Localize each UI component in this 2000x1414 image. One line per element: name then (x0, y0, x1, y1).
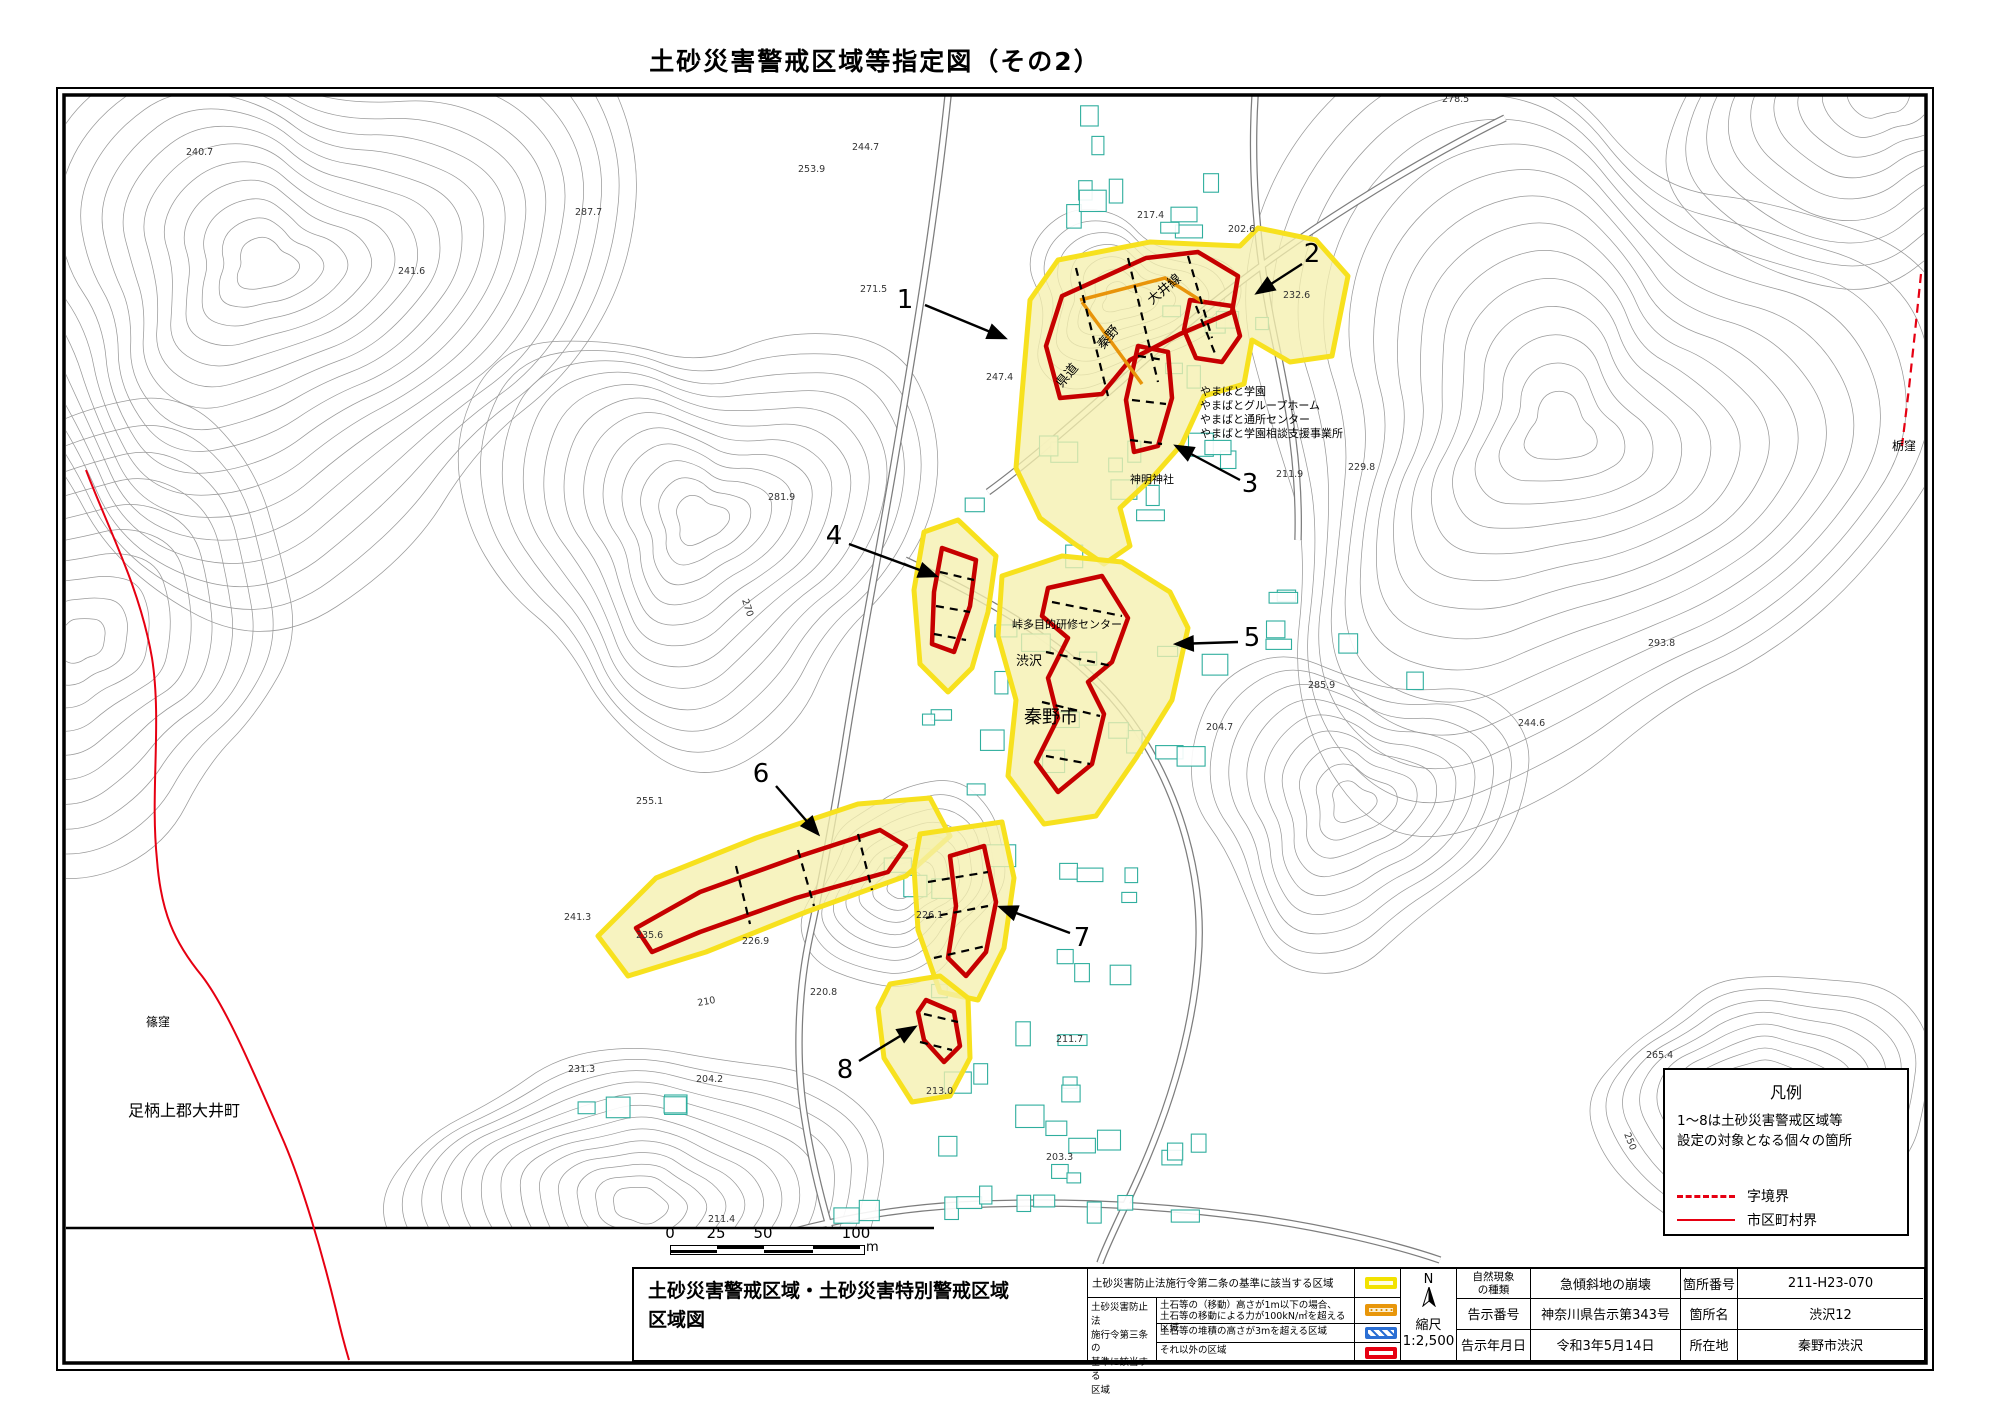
aza-boundary-dashed-line (1902, 274, 1921, 446)
north-arrow-icon (1422, 1287, 1436, 1307)
elevation-label: 270 (739, 598, 755, 619)
elevation-label: 241.3 (564, 912, 591, 923)
elevation-label: 281.9 (768, 492, 795, 503)
zone-number: 7 (1074, 923, 1091, 953)
legend-row-deposit: 土石等の堆積の高さが3mを超える区域 (1156, 1324, 1354, 1343)
elevation-label: 220.8 (810, 987, 837, 998)
elevation-label: 247.4 (986, 372, 1013, 383)
place-label: 足柄上郡大井町 (128, 1101, 240, 1120)
zone-number: 6 (753, 759, 770, 789)
map-frame-outer (57, 88, 1933, 1370)
elevation-label: 232.6 (1283, 290, 1310, 301)
place-label: 峠多目的研修センター (1012, 617, 1122, 631)
info-label: 自然現象 の種類 (1457, 1269, 1530, 1299)
elevation-label: 265.4 (1646, 1050, 1673, 1061)
divider (1354, 1297, 1400, 1298)
elevation-label: 211.7 (1056, 1034, 1083, 1045)
elevation-label: 226.9 (742, 936, 769, 947)
zone-number: 8 (837, 1055, 854, 1085)
legend-item-aza-boundary: 字境界 (1677, 1186, 1789, 1206)
info-value: 令和3年5月14日 (1530, 1330, 1680, 1360)
elevation-label: 231.3 (568, 1064, 595, 1075)
legend-note-line2: 設定の対象となる個々の箇所 (1677, 1133, 1907, 1151)
sheet-info-table: 自然現象 の種類 急傾斜地の崩壊 箇所番号 211-H23-070 告示番号 神… (1457, 1269, 1923, 1360)
info-label: 箇所名 (1680, 1299, 1737, 1329)
municipal-boundary-line (86, 470, 349, 1360)
legend-title: 凡例 (1665, 1079, 1907, 1103)
red-outline-swatch (1365, 1347, 1397, 1359)
place-label: やまばと学園 (1200, 384, 1266, 398)
info-label: 所在地 (1680, 1330, 1737, 1360)
elevation-label: 255.1 (636, 796, 663, 807)
zone-number: 3 (1242, 469, 1259, 499)
zone-number: 2 (1304, 239, 1321, 269)
elevation-label: 244.7 (852, 142, 879, 153)
article2-label: 土砂災害防止法施行令第二条の基準に該当する区域 (1092, 1276, 1334, 1291)
place-label: やまばとグループホーム (1200, 398, 1320, 412)
info-label: 箇所番号 (1680, 1269, 1737, 1299)
north-label: N (1401, 1272, 1456, 1287)
map-sheet-title-line1: 土砂災害警戒区域・土砂災害特別警戒区域 (648, 1277, 1087, 1306)
elevation-label: 271.5 (860, 284, 887, 295)
elevation-label: 244.6 (1518, 718, 1545, 729)
info-value: 秦野市渋沢 (1737, 1330, 1923, 1360)
divider (1354, 1323, 1400, 1324)
elevation-label: 204.7 (1206, 722, 1233, 733)
article3-header: 土砂災害防止法 施行令第三条の 基準に該当する 区域 (1088, 1298, 1156, 1364)
orange-dotted-swatch (1365, 1304, 1397, 1316)
legend-item-label: 市区町村界 (1747, 1210, 1817, 1230)
info-value: 211-H23-070 (1737, 1269, 1923, 1299)
legend-row-article2: 土砂災害防止法施行令第二条の基準に該当する区域 (1088, 1269, 1400, 1298)
map-sheet-title: 土砂災害警戒区域・土砂災害特別警戒区域 区域図 (634, 1269, 1088, 1360)
scale-value: 1:2,500 (1401, 1333, 1456, 1349)
divider (1354, 1342, 1400, 1343)
legend-note-line1: 1〜8は土砂災害警戒区域等 (1677, 1113, 1907, 1131)
legend-row-move: 土石等の（移動）高さが1m以下の場合、 土石等の移動による力が100kN/㎡を超… (1156, 1298, 1354, 1324)
elevation-label: 210 (697, 995, 717, 1009)
scale-tick: 0 (665, 1224, 675, 1242)
elevation-label: 229.8 (1348, 462, 1375, 473)
place-label: 秦野市 (1024, 707, 1078, 728)
elevation-label: 203.3 (1046, 1152, 1073, 1163)
elevation-label: 213.0 (926, 1086, 953, 1097)
elevation-label: 250 (1621, 1131, 1638, 1152)
info-value: 急傾斜地の崩壊 (1530, 1269, 1680, 1299)
elevation-label: 204.2 (696, 1074, 723, 1085)
place-label: やまばと通所センター (1200, 413, 1310, 426)
info-label: 告示年月日 (1457, 1330, 1530, 1360)
elevation-label: 202.6 (1228, 224, 1255, 235)
elevation-label: 211.9 (1276, 469, 1303, 480)
scale-unit: m (866, 1240, 879, 1255)
elevation-label: 293.8 (1648, 638, 1675, 649)
elevation-label: 285.9 (1308, 680, 1335, 691)
scale-label: 縮尺 (1401, 1314, 1456, 1333)
place-label: やまばと学園相談支援事業所 (1200, 426, 1343, 440)
elevation-label: 287.7 (575, 207, 602, 218)
compass-and-scale-cell: N 縮尺 1:2,500 (1400, 1269, 1457, 1360)
elevation-label: 226.1 (916, 910, 943, 921)
yellow-zone-swatch (1365, 1277, 1397, 1289)
map-sheet-title-line2: 区域図 (648, 1306, 1087, 1335)
legend-box: 凡例 1〜8は土砂災害警戒区域等 設定の対象となる個々の箇所 字境界 市区町村界 (1663, 1068, 1909, 1236)
elevation-label: 240.7 (186, 147, 213, 158)
elevation-label: 241.6 (398, 266, 425, 277)
solid-red-line-sample (1677, 1219, 1735, 1221)
scale-tick: 50 (753, 1224, 772, 1242)
dashed-red-line-sample (1677, 1195, 1735, 1198)
scale-tick: 25 (706, 1224, 725, 1242)
place-label: 篠窪 (146, 1014, 170, 1029)
info-value: 神奈川県告示第343号 (1530, 1299, 1680, 1329)
elevation-label: 235.6 (636, 930, 663, 941)
place-label: 神明神社 (1130, 472, 1174, 486)
zone-number: 4 (826, 521, 843, 551)
map-frame-inner (64, 95, 1926, 1363)
info-value: 渋沢12 (1737, 1299, 1923, 1329)
scale-bar: 0 25 50 100 m (648, 1224, 898, 1260)
zone-type-legend: 土砂災害防止法施行令第二条の基準に該当する区域 土砂災害防止法 施行令第三条の … (1088, 1269, 1400, 1360)
zone-number: 1 (897, 285, 914, 315)
zone-number: 5 (1244, 623, 1261, 653)
place-label: 栃窪 (1892, 438, 1916, 453)
title-block-table: 土砂災害警戒区域・土砂災害特別警戒区域 区域図 土砂災害防止法施行令第二条の基準… (632, 1267, 1926, 1362)
scale-bar-segments (670, 1245, 865, 1255)
legend-item-municipal-boundary: 市区町村界 (1677, 1210, 1817, 1230)
info-label: 告示番号 (1457, 1299, 1530, 1329)
legend-item-label: 字境界 (1747, 1186, 1789, 1206)
place-label: 渋沢 (1016, 654, 1042, 669)
legend-row-other: それ以外の区域 (1156, 1343, 1354, 1364)
blue-hatched-swatch (1365, 1327, 1397, 1339)
zone-arrow (925, 305, 1005, 338)
elevation-label: 217.4 (1137, 210, 1164, 221)
elevation-label: 253.9 (798, 164, 825, 175)
